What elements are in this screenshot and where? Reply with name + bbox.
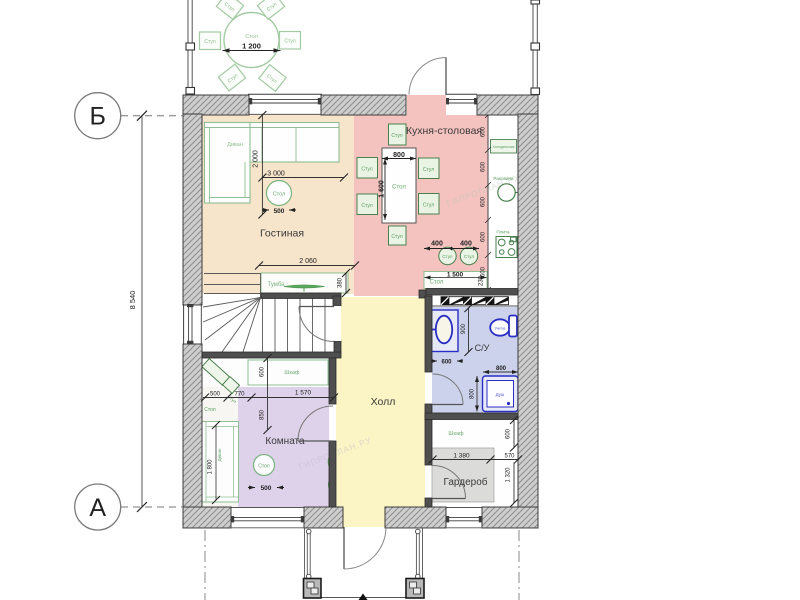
svg-text:Холл: Холл [371,396,396,408]
svg-text:600: 600 [506,428,512,439]
svg-text:1 320: 1 320 [506,467,512,483]
svg-text:Шкаф: Шкаф [284,370,300,376]
svg-text:900: 900 [461,323,467,334]
svg-text:380: 380 [338,277,344,288]
svg-text:400: 400 [460,241,472,248]
svg-text:800: 800 [393,152,405,159]
svg-text:Стул: Стул [361,167,372,173]
svg-text:Тумба: Тумба [268,282,286,288]
svg-text:800: 800 [496,366,507,372]
svg-text:1 800: 1 800 [208,459,214,475]
svg-text:400: 400 [431,241,443,248]
svg-text:Стул: Стул [464,254,475,259]
svg-text:Стул: Стул [391,133,402,139]
svg-text:770: 770 [234,392,245,398]
svg-text:Б: Б [89,103,105,131]
svg-text:Стул: Стул [361,203,372,209]
svg-text:Холодильник: Холодильник [493,145,515,149]
svg-text:1 600: 1 600 [379,180,386,198]
svg-text:8 540: 8 540 [128,291,137,310]
svg-text:Раковина: Раковина [493,176,514,181]
svg-text:Стул: Стул [391,234,402,240]
svg-text:Гардероб: Гардероб [444,476,488,488]
svg-text:600: 600 [481,161,487,172]
svg-text:800: 800 [470,388,476,399]
svg-text:Кухня-столовая: Кухня-столовая [406,125,482,137]
svg-text:500: 500 [274,208,285,215]
svg-text:2 060: 2 060 [299,258,317,265]
svg-text:Гостиная: Гостиная [260,228,304,240]
svg-text:А: А [89,494,106,522]
svg-text:1 570: 1 570 [295,390,312,397]
svg-text:Стол: Стол [430,280,444,286]
svg-text:1 200: 1 200 [242,42,261,51]
svg-text:2 000: 2 000 [253,150,260,168]
svg-text:Стол: Стол [273,192,286,198]
svg-text:850: 850 [260,409,266,420]
svg-text:Душ: Душ [496,392,505,397]
svg-text:500: 500 [261,485,272,492]
svg-text:Стул: Стул [442,254,453,259]
svg-text:600: 600 [481,231,487,242]
svg-text:Шкаф: Шкаф [448,431,464,437]
svg-text:1 380: 1 380 [453,453,470,460]
svg-text:3 000: 3 000 [267,171,285,178]
svg-text:Стул: Стул [204,39,215,45]
svg-text:Плита: Плита [496,230,510,235]
svg-text:570: 570 [504,454,515,460]
svg-text:Стул: Стул [284,39,295,45]
svg-text:Комната: Комната [265,436,305,447]
svg-text:Диван: Диван [217,448,222,461]
svg-text:600: 600 [481,266,487,277]
svg-text:600: 600 [481,196,487,207]
svg-text:Диван: Диван [227,142,243,148]
svg-text:Стол: Стол [258,464,270,470]
svg-text:С/У: С/У [475,343,490,353]
svg-text:Стул: Стул [423,167,434,173]
svg-text:Стол: Стол [204,407,216,413]
svg-text:Стол: Стол [245,34,258,40]
svg-text:Стол: Стол [392,185,406,191]
svg-text:1 500: 1 500 [447,272,464,279]
svg-text:Унитаз: Унитаз [495,327,506,331]
svg-text:Стул: Стул [423,203,434,209]
svg-text:600: 600 [441,360,452,366]
svg-text:600: 600 [260,366,266,377]
svg-text:500: 500 [210,392,221,398]
